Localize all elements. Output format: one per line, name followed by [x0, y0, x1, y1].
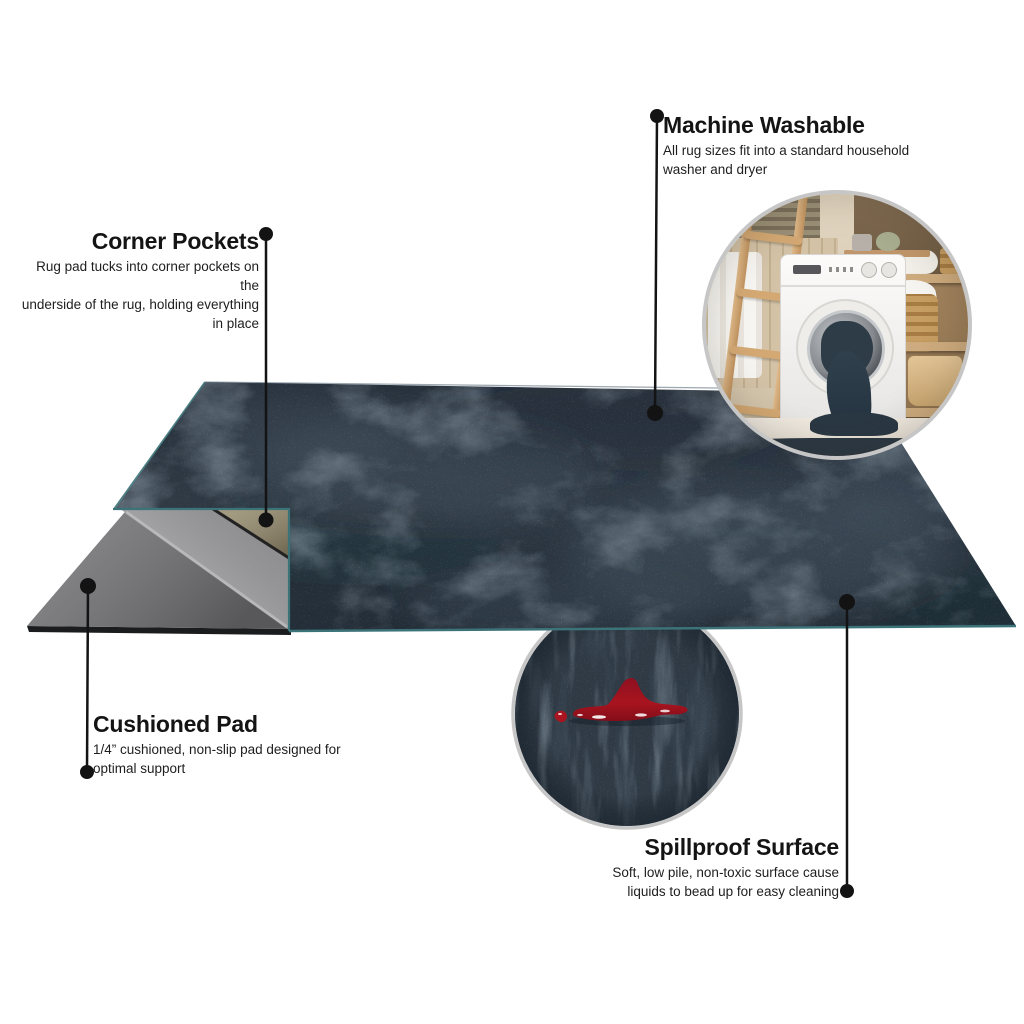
spillproof-dot-label: [840, 884, 854, 898]
callout-machine-washable: Machine Washable All rug sizes fit into …: [663, 112, 943, 179]
machine-washable-dot-rug: [647, 405, 663, 421]
callout-body-line: liquids to bead up for easy cleaning: [589, 882, 839, 901]
callout-body-line: Soft, low pile, non-toxic surface cause: [589, 863, 839, 882]
rug-product-infographic: Machine Washable All rug sizes fit into …: [0, 0, 1024, 1024]
callout-body-line: All rug sizes fit into a standard househ…: [663, 141, 943, 160]
callout-body-line: 1/4” cushioned, non-slip pad designed fo…: [93, 740, 363, 759]
callout-cushioned-pad: Cushioned Pad 1/4” cushioned, non-slip p…: [93, 711, 363, 778]
cushioned-pad-dot-label: [80, 765, 94, 779]
corner-pockets-callout: [259, 227, 274, 528]
callout-title: Cushioned Pad: [93, 711, 363, 737]
callout-body-line: washer and dryer: [663, 160, 943, 179]
spillproof-callout: [839, 594, 855, 898]
machine-washable-dot-label: [650, 109, 664, 123]
corner-pockets-dot-label: [259, 227, 273, 241]
callout-body-line: in place: [14, 314, 259, 333]
callout-title: Machine Washable: [663, 112, 943, 138]
spillproof-dot-rug: [839, 594, 855, 610]
corner-pockets-dot-pocket: [259, 513, 274, 528]
callout-corner-pockets: Corner Pockets Rug pad tucks into corner…: [14, 228, 259, 333]
callout-body-line: optimal support: [93, 759, 363, 778]
callout-title: Spillproof Surface: [589, 834, 839, 860]
machine-washable-callout: [647, 109, 664, 421]
cushioned-pad-line: [87, 586, 88, 772]
callout-spillproof-surface: Spillproof Surface Soft, low pile, non-t…: [589, 834, 839, 901]
cushioned-pad-dot-pad: [80, 578, 96, 594]
machine-washable-line: [655, 116, 657, 413]
callout-body-line: Rug pad tucks into corner pockets on the: [14, 257, 259, 295]
callout-body-line: underside of the rug, holding everything: [14, 295, 259, 314]
callout-title: Corner Pockets: [14, 228, 259, 254]
